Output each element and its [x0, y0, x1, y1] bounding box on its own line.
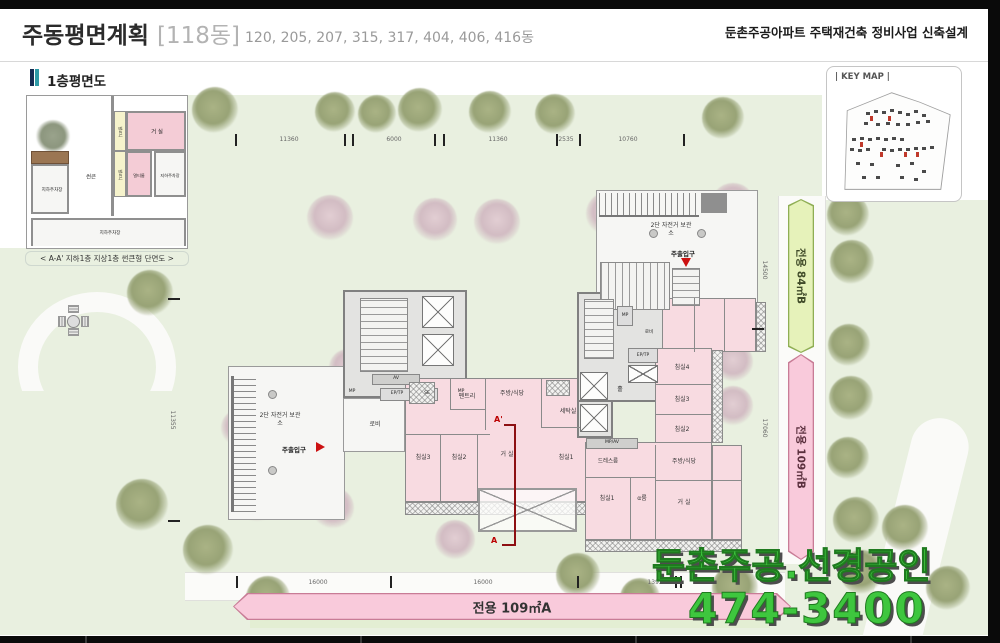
pergola-table [67, 315, 80, 328]
wall [450, 378, 451, 410]
watermark-line2: 474-3400 [688, 588, 926, 630]
entrance-steps [672, 268, 700, 306]
section-parking-bottom: 지하주차장 [31, 218, 186, 246]
keymap-building-block [882, 111, 886, 114]
living-left-label: 거 실 [501, 452, 514, 458]
bath-left2 [546, 380, 570, 396]
plan-sheet: 주동평면계획 [118동] 120, 205, 207, 315, 317, 4… [0, 0, 1000, 643]
keymap-highlight-block [916, 152, 919, 157]
tree-olive [829, 376, 873, 420]
bike-storage-top-label: 2단 자전거 보관소 [648, 222, 694, 238]
keymap-building-block [914, 147, 918, 150]
tree-olive [926, 566, 970, 610]
bed3-left-label: 침실3 [416, 455, 431, 461]
keymap-building-block [914, 110, 918, 113]
wall [440, 434, 441, 502]
keymap-building-block [874, 110, 878, 113]
keymap-building-block [876, 137, 880, 140]
pergola-icon [58, 305, 88, 335]
column-circle [268, 390, 277, 399]
void-crossed [478, 488, 577, 532]
section-living: 거 실 [126, 111, 186, 151]
dim-top-2: 6000 [386, 137, 401, 143]
elevator [628, 365, 658, 383]
keymap-building-block [862, 176, 866, 179]
bike-rack-left [231, 376, 256, 512]
keymap-building-block [906, 113, 910, 116]
section-caption: < A-A' 지하1층 지상1층 썬큰형 단면도 > [25, 251, 189, 266]
keymap-site-outline [835, 87, 953, 193]
keymap-building-block [884, 138, 888, 141]
keymap-building-block [890, 149, 894, 152]
dimension-tick [579, 134, 581, 146]
section-parking-left: 지하주차장 [31, 164, 69, 214]
bed3-right-label: 침실3 [675, 397, 690, 403]
balcony-109b-side [712, 350, 723, 443]
taskbar-divider [910, 636, 912, 643]
keymap-building-block [906, 148, 910, 151]
mp-label: MP [349, 390, 356, 395]
bike-storage-left-label: 2단 자전거 보관소 [258, 412, 302, 428]
keymap-title: | KEY MAP | [835, 72, 890, 82]
section-living-label: 거 실 [151, 130, 163, 136]
wall [655, 445, 656, 540]
section-planter [31, 151, 69, 164]
dim-right-top: 14500 [761, 260, 767, 279]
keymap-building-block [892, 137, 896, 140]
wall [541, 378, 542, 428]
tree-olive [127, 270, 173, 316]
kitchen-right-label: 주방/식당 [672, 459, 696, 465]
keymap-box: | KEY MAP | [826, 66, 962, 202]
hall-label: 홀 [617, 387, 623, 393]
wall [450, 409, 485, 410]
keymap-building-block [900, 138, 904, 141]
bed1-right-label: 침실1 [600, 496, 615, 502]
keymap-building-block [850, 148, 854, 151]
tree-olive [830, 240, 874, 284]
lobby-left-label: 로비 [369, 422, 380, 428]
bed4-right-label: 침실4 [675, 365, 690, 371]
lobby-right-label: 로비 [645, 331, 653, 336]
stair-core-right [584, 299, 614, 359]
keymap-building-block [866, 112, 870, 115]
tree-olive [833, 497, 879, 543]
page-title: 주동평면계획 [118동] [22, 16, 240, 50]
taskbar-divider [360, 636, 362, 643]
keymap-building-block [922, 170, 926, 173]
keymap-building-block [914, 178, 918, 181]
header-divider [0, 61, 988, 62]
section-parking-bottom-label: 지하주차장 [100, 232, 121, 237]
pergola-bar-left [58, 316, 66, 327]
keymap-building-block [896, 123, 900, 126]
bike-rack-top [599, 193, 699, 217]
keymap-building-block [896, 164, 900, 167]
keymap-building-block [870, 163, 874, 166]
floor-plan-label: 1층평면도 [47, 70, 106, 90]
keymap-building-block [890, 109, 894, 112]
banner-109b-label: 전용 109㎡B [794, 425, 809, 488]
balcony-84b [756, 302, 766, 352]
bed2-right-label: 침실2 [675, 427, 690, 433]
column-circle [268, 466, 277, 475]
mp-right-label: MP [622, 314, 629, 319]
section-parking-left-label: 지하주차장 [42, 189, 63, 194]
bath-left [409, 382, 435, 404]
keymap-building-block [868, 138, 872, 141]
banner-84b-label: 전용 84㎡B [794, 248, 809, 304]
keymap-highlight-block [904, 152, 907, 157]
entrance-top-arrow-icon [681, 258, 691, 267]
keymap-building-block [876, 123, 880, 126]
keymap-building-block [922, 147, 926, 150]
other-buildings-list: 120, 205, 207, 315, 317, 404, 406, 416동 [245, 27, 534, 47]
keymap-building-block [906, 123, 910, 126]
keymap-highlight-block [870, 116, 873, 121]
pergola-bar-right [81, 316, 89, 327]
tree-olive [398, 88, 442, 132]
eptp-right-label: EP/TP [637, 354, 650, 359]
dim-top-5: 10760 [618, 137, 637, 143]
keymap-building-block [864, 122, 868, 125]
section-multi-room-label: 멀티룸 [133, 174, 145, 178]
dimension-tick [752, 328, 764, 330]
tree-olive [828, 324, 870, 366]
taskbar-divider [85, 636, 87, 643]
keymap-building-block [852, 138, 856, 141]
floor-label-icon-dark [30, 69, 34, 86]
wall [585, 477, 655, 478]
unit-84b [662, 298, 756, 352]
keymap-highlight-block [860, 142, 863, 147]
elevator [422, 296, 454, 328]
dimension-tick [390, 576, 392, 588]
keymap-building-block [930, 146, 934, 149]
dimension-tick [236, 576, 238, 588]
tree-olive [183, 525, 233, 575]
wall [485, 378, 486, 430]
dimension-tick [168, 520, 180, 522]
dimension-tick [443, 134, 445, 146]
unit-109b-main [585, 442, 712, 540]
keymap-building-block [886, 122, 890, 125]
keymap-building-block [916, 121, 920, 124]
section-sunken-label: 썬큰 [86, 175, 96, 181]
keymap-building-block [900, 176, 904, 179]
tree-olive [116, 479, 168, 531]
tree-olive [192, 87, 238, 133]
dress-room-label: 드레스룸 [598, 459, 618, 465]
section-balcony-top: 발코니 [114, 111, 126, 151]
dimension-tick [683, 134, 685, 146]
section-line-bottom-jog [502, 544, 516, 546]
entrance-left-arrow-icon [316, 442, 325, 452]
kitchen-left-label: 주방/식당 [500, 391, 524, 397]
banner-84b: 전용 84㎡B [788, 199, 814, 353]
keymap-building-block [876, 176, 880, 179]
dimension-tick [235, 134, 237, 146]
section-parking-right-label: 지하주차장 [160, 174, 179, 178]
section-line [514, 424, 516, 546]
dim-top-1: 11360 [279, 137, 298, 143]
storage-block [701, 193, 727, 213]
dim-right-bottom: 17060 [761, 418, 767, 437]
living-right-label: 거 실 [678, 500, 691, 506]
wall [655, 414, 712, 415]
right-black-bar [988, 0, 1000, 643]
unit-109b-ext [712, 445, 742, 540]
tree-olive [882, 505, 928, 551]
tree-olive [315, 92, 355, 132]
elevator [422, 334, 454, 366]
taskbar-divider [635, 636, 637, 643]
banner-109b-fill: 전용 109㎡B [789, 355, 812, 558]
wall [477, 434, 478, 502]
tree-cherry [474, 199, 520, 245]
stair-core-left [360, 298, 408, 372]
banner-109b: 전용 109㎡B [788, 354, 814, 560]
section-balcony-top-label: 발코니 [118, 126, 122, 137]
section-balcony-bottom: 발코니 [114, 151, 126, 197]
top-black-bar [0, 0, 1000, 9]
floor-label-icon [30, 69, 40, 86]
keymap-site [836, 88, 952, 192]
banner-84b-fill: 전용 84㎡B [789, 200, 812, 351]
wall [655, 384, 712, 385]
dimension-tick [352, 134, 354, 146]
keymap-highlight-block [888, 116, 891, 121]
wall [694, 298, 695, 352]
section-sunken-area: 썬큰 [69, 96, 114, 216]
bottom-black-bar [0, 636, 1000, 643]
entrance-top-label: 주출입구 [671, 248, 695, 258]
keymap-building-block [858, 149, 862, 152]
keymap-highlight-block [880, 152, 883, 157]
pantry-label: 펜트리 [459, 394, 476, 400]
tree-olive [827, 437, 869, 479]
section-marker-a: A [491, 537, 497, 545]
keymap-building-block [882, 148, 886, 151]
tree-olive [535, 94, 575, 134]
project-name: 둔촌주공아파트 주택재건축 정비사업 신축설계 [725, 22, 968, 41]
page-title-text: 주동평면계획 [22, 23, 149, 49]
dim-top-4: 2535 [558, 137, 573, 143]
tree-cherry [413, 198, 457, 242]
column-circle [697, 229, 706, 238]
section-tree [35, 120, 71, 152]
keymap-building-block [898, 111, 902, 114]
dimension-tick [344, 134, 346, 146]
eptp-label: EP/TP [391, 392, 404, 397]
section-marker-a-prime: A' [494, 416, 503, 424]
keymap-building-block [926, 120, 930, 123]
section-parking-right: 지하주차장 [154, 151, 186, 197]
bed2-left-label: 침실2 [452, 455, 467, 461]
keymap-building-block [910, 162, 914, 165]
building-number: [118동] [157, 23, 240, 49]
keymap-building-block [898, 148, 902, 151]
tree-olive [469, 91, 511, 133]
keymap-building-block [922, 114, 926, 117]
tree-olive [358, 95, 396, 133]
pergola-bar-bottom [68, 328, 79, 336]
wall [724, 298, 725, 352]
banner-109a-label: 전용 109㎡A [473, 597, 552, 616]
keymap-building-block [856, 162, 860, 165]
dimension-tick [434, 134, 436, 146]
floor-label-icon-teal [35, 69, 39, 86]
wall [630, 477, 631, 540]
laundry-label: 세탁실 [560, 409, 577, 415]
av-label: AV [393, 377, 399, 382]
tree-olive [556, 553, 600, 597]
section-drawing: 지하주차장 썬큰 발코니 거 실 발코니 멀티룸 지하주차장 지하주차장 [26, 95, 188, 249]
entrance-left-label: 주출입구 [282, 444, 306, 454]
keymap-building-block [860, 137, 864, 140]
dimension-tick [556, 134, 558, 146]
se-label: SE [424, 392, 430, 397]
pergola-bar-top [68, 305, 79, 313]
mpav-label: MP/AV [605, 441, 619, 446]
alpha-room-label: α룸 [637, 496, 646, 502]
keymap-building-block [866, 148, 870, 151]
bed1-left-label: 침실1 [559, 455, 574, 461]
section-balcony-bottom-label: 발코니 [118, 169, 122, 180]
dimension-tick [168, 298, 180, 300]
tree-cherry [307, 195, 353, 241]
watermark-line1: 둔촌주공.선경공인 [652, 549, 931, 585]
tree-olive [702, 97, 744, 139]
dim-bottom-1: 16000 [308, 580, 327, 586]
section-multi-room: 멀티룸 [126, 151, 152, 197]
dimension-tick [577, 576, 579, 588]
dim-bottom-2: 16000 [473, 580, 492, 586]
dim-left: 11355 [169, 410, 175, 429]
wall [655, 480, 742, 481]
dim-top-3: 11360 [488, 137, 507, 143]
elevator [580, 372, 608, 400]
elevator [580, 404, 608, 432]
tree-cherry [435, 520, 475, 560]
